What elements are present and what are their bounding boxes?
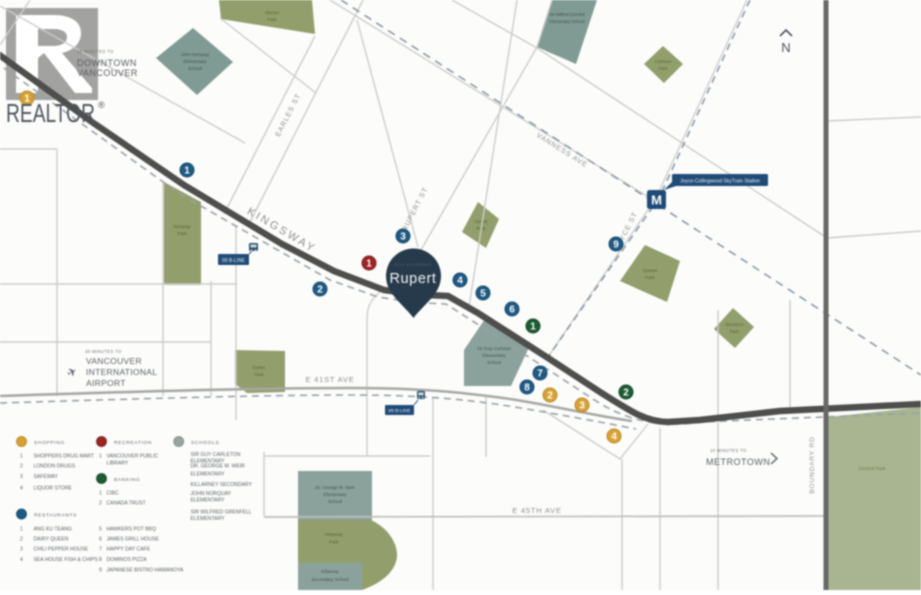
svg-text:KILLARNEY SECONDARY: KILLARNEY SECONDARY [191,482,253,488]
svg-text:SCHOOLS: SCHOOLS [191,440,219,446]
svg-text:4: 4 [457,276,463,287]
svg-text:Killarney: Killarney [321,569,339,574]
svg-text:2: 2 [20,537,23,543]
svg-text:4: 4 [20,557,23,563]
svg-text:Elementary School: Elementary School [549,19,584,24]
svg-text:E 45TH AVE: E 45TH AVE [512,506,562,515]
svg-text:Dr. George M. Weir: Dr. George M. Weir [315,485,355,490]
svg-text:3: 3 [579,401,585,412]
svg-text:30 MINUTES TO: 30 MINUTES TO [85,349,122,354]
svg-text:Park: Park [645,275,655,280]
svg-text:VANCOUVER: VANCOUVER [86,356,142,366]
svg-text:School: School [188,66,202,71]
svg-text:Harold: Harold [475,219,488,224]
svg-text:JOHN NORQUAY: JOHN NORQUAY [191,491,232,497]
svg-text:Earles: Earles [253,365,266,370]
svg-text:JAPANESE BISTRO HAMANOYA: JAPANESE BISTRO HAMANOYA [107,568,184,574]
svg-text:9: 9 [613,240,619,251]
svg-text:ANG KU TEANG: ANG KU TEANG [34,527,72,533]
svg-text:INTERNATIONAL: INTERNATIONAL [86,367,157,377]
svg-text:ELEMENTARY: ELEMENTARY [191,516,226,522]
svg-text:2: 2 [99,501,102,507]
svg-text:SHOPPING: SHOPPING [34,440,65,446]
svg-text:Sir Wilfred Grenfell: Sir Wilfred Grenfell [549,12,584,17]
svg-text:6: 6 [99,537,102,543]
svg-text:Rupert: Rupert [389,271,436,287]
svg-text:N: N [781,40,790,55]
svg-text:5: 5 [480,289,486,300]
svg-text:SIR WILFRED GRENFELL: SIR WILFRED GRENFELL [191,510,252,516]
svg-text:LIBRARY: LIBRARY [107,461,129,467]
svg-text:1: 1 [20,527,23,533]
svg-text:Joyce-Collingwood SkyTrain Sta: Joyce-Collingwood SkyTrain Station [680,179,760,185]
svg-text:SHOPPERS DRUG MART: SHOPPERS DRUG MART [34,454,94,460]
svg-text:JAMES GRILL HOUSE: JAMES GRILL HOUSE [107,537,160,543]
svg-text:John Norquay: John Norquay [181,52,210,57]
svg-text:8: 8 [99,557,102,563]
svg-text:Park: Park [329,540,339,545]
svg-text:Park: Park [658,66,668,71]
svg-text:Park: Park [177,231,187,236]
svg-text:Aberdeen: Aberdeen [724,322,744,327]
svg-text:Carleton: Carleton [655,59,672,64]
svg-text:1: 1 [99,454,102,460]
svg-text:ELEMENTARY: ELEMENTARY [191,472,226,478]
svg-text:®: ® [98,100,105,110]
svg-text:5: 5 [99,527,102,533]
svg-text:HAPPY DAY CAFE: HAPPY DAY CAFE [107,547,151,553]
svg-text:Sir Guy Carleton: Sir Guy Carleton [477,346,511,351]
svg-text:BOUNDARY RD: BOUNDARY RD [809,436,816,493]
svg-text:2: 2 [547,391,553,402]
svg-text:SAFEWAY: SAFEWAY [34,474,59,480]
svg-text:3: 3 [20,474,23,480]
svg-text:DOWNTOWN: DOWNTOWN [77,58,137,68]
svg-text:Park: Park [729,329,739,334]
svg-text:8: 8 [524,383,530,394]
svg-text:6: 6 [509,305,515,316]
svg-text:HAWKERS POT BBQ: HAWKERS POT BBQ [107,527,157,533]
svg-text:CANADA TRUST: CANADA TRUST [107,501,146,507]
svg-text:99 B-LINE: 99 B-LINE [222,258,246,264]
svg-text:Norquay: Norquay [173,224,191,229]
svg-text:Elementary: Elementary [323,492,347,497]
svg-text:Secondary School: Secondary School [311,577,348,582]
svg-text:VANCOUVER PUBLIC: VANCOUVER PUBLIC [107,454,159,460]
svg-text:REALTOR: REALTOR [6,98,95,128]
svg-text:ELEMENTARY: ELEMENTARY [191,498,226,504]
svg-text:DR. GEORGE M. WEIR: DR. GEORGE M. WEIR [191,464,246,470]
svg-text:Park: Park [254,372,264,377]
svg-text:RECREATION: RECREATION [114,440,152,446]
svg-text:SIR GUY CARLETON: SIR GUY CARLETON [191,452,241,458]
svg-text:3: 3 [400,232,406,243]
svg-text:4: 4 [20,486,23,492]
svg-text:Gaston: Gaston [643,268,658,273]
svg-text:Park: Park [267,17,277,22]
svg-text:LIQUOR STORE: LIQUOR STORE [34,486,73,492]
svg-text:School: School [328,499,342,504]
svg-text:LONDON DRUGS: LONDON DRUGS [34,464,76,470]
svg-text:9: 9 [99,568,102,574]
svg-text:Elementary: Elementary [183,59,207,64]
svg-text:M: M [651,193,662,208]
svg-text:BANKING: BANKING [114,477,141,483]
svg-text:Elementary: Elementary [482,353,506,358]
svg-text:AIRPORT: AIRPORT [86,378,126,388]
svg-text:RESTAURANTS: RESTAURANTS [34,513,77,519]
svg-text:99 B-LINE: 99 B-LINE [388,408,410,414]
svg-text:Central Park: Central Park [859,466,886,472]
svg-text:1: 1 [20,454,23,460]
svg-text:1: 1 [366,259,372,270]
svg-text:CIBC: CIBC [107,491,119,497]
svg-text:1: 1 [530,322,536,333]
svg-text:Slocan: Slocan [265,10,279,15]
svg-text:METROTOWN: METROTOWN [706,457,770,467]
svg-text:1: 1 [184,166,190,177]
svg-text:2: 2 [317,285,323,296]
svg-text:School: School [487,360,501,365]
svg-text:VANCOUVER: VANCOUVER [77,68,138,78]
svg-text:DAIRY QUEEN: DAIRY QUEEN [34,537,69,543]
svg-text:10 MINUTES TO: 10 MINUTES TO [710,448,747,453]
svg-text:15 MINUTES TO: 15 MINUTES TO [77,49,114,54]
svg-text:E 41ST AVE: E 41ST AVE [306,375,355,384]
svg-text:7: 7 [99,547,102,553]
svg-text:CHILI PEPPER HOUSE: CHILI PEPPER HOUSE [34,547,89,553]
svg-text:DOMINOS PIZZA: DOMINOS PIZZA [107,557,148,563]
svg-text:3: 3 [20,547,23,553]
svg-text:7: 7 [537,369,543,380]
svg-text:4: 4 [611,432,617,443]
svg-text:SEA HOUSE FISH & CHIPS: SEA HOUSE FISH & CHIPS [34,557,99,563]
svg-text:2: 2 [20,464,23,470]
svg-text:Killarney: Killarney [325,532,343,537]
svg-text:2: 2 [623,388,629,399]
svg-text:3333 KINGSWAY: 3333 KINGSWAY [394,263,432,267]
svg-text:1: 1 [99,491,102,497]
